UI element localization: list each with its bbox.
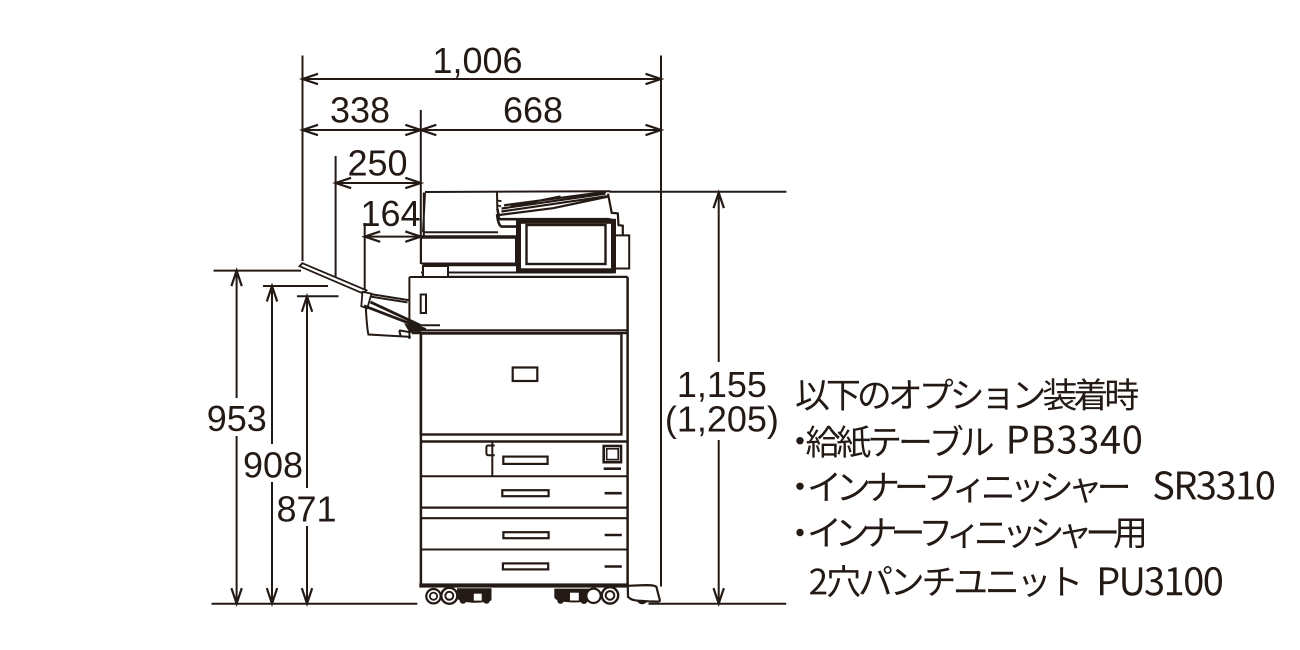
svg-text:250: 250 <box>347 143 407 184</box>
svg-text:953: 953 <box>207 398 267 439</box>
svg-text:1,006: 1,006 <box>432 40 522 81</box>
svg-text:338: 338 <box>330 90 390 131</box>
svg-text:668: 668 <box>503 90 563 131</box>
svg-text:871: 871 <box>276 489 336 530</box>
svg-text:908: 908 <box>243 445 303 486</box>
svg-text:164: 164 <box>360 193 420 234</box>
svg-text:(1,205): (1,205) <box>665 399 779 440</box>
